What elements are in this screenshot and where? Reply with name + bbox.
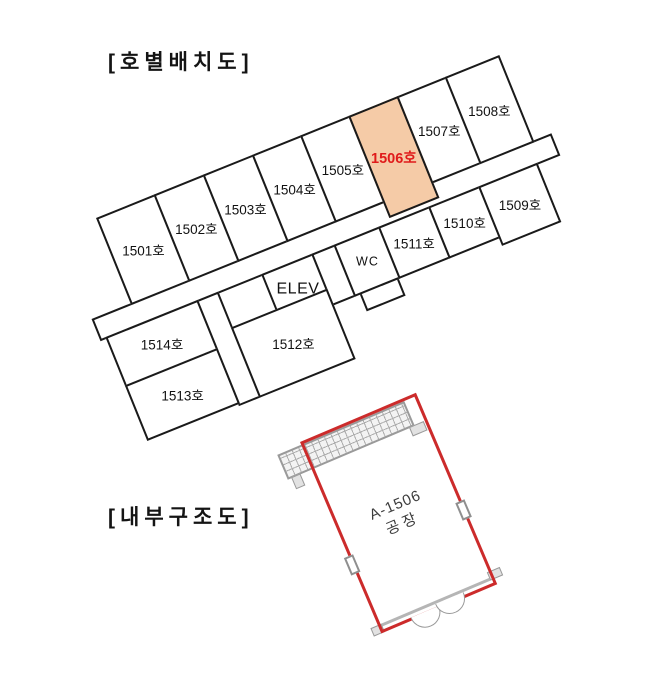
room-1509-label: 1509호 (498, 194, 540, 214)
wc-label: WC (356, 255, 379, 269)
interior-plan-title: [내부구조도] (108, 501, 254, 531)
room-1501-label: 1501호 (122, 240, 164, 260)
interior-plan-diagram: A-1506 공장 (300, 393, 497, 634)
room-1510-label: 1510호 (443, 212, 485, 232)
room-1511-label: 1511호 (394, 233, 435, 253)
room-1508-label: 1508호 (468, 100, 510, 120)
room-1512-label: 1512호 (272, 333, 314, 353)
floor-plan-title: [호별배치도] (108, 46, 254, 76)
room-1507-label: 1507호 (418, 120, 460, 140)
floor-plan-diagram: 1501호 1502호 1503호 1504호 1505호 1506호 1507… (96, 55, 589, 440)
room-1502-label: 1502호 (175, 218, 217, 238)
room-1503-label: 1503호 (224, 198, 266, 218)
room-1505-label: 1505호 (321, 159, 363, 179)
room-1514-label: 1514호 (141, 333, 183, 353)
grating-left-cap (291, 473, 305, 489)
room-1513-label: 1513호 (161, 384, 203, 404)
room-1504-label: 1504호 (273, 179, 315, 199)
room-1506-label: 1506호 (371, 146, 417, 167)
